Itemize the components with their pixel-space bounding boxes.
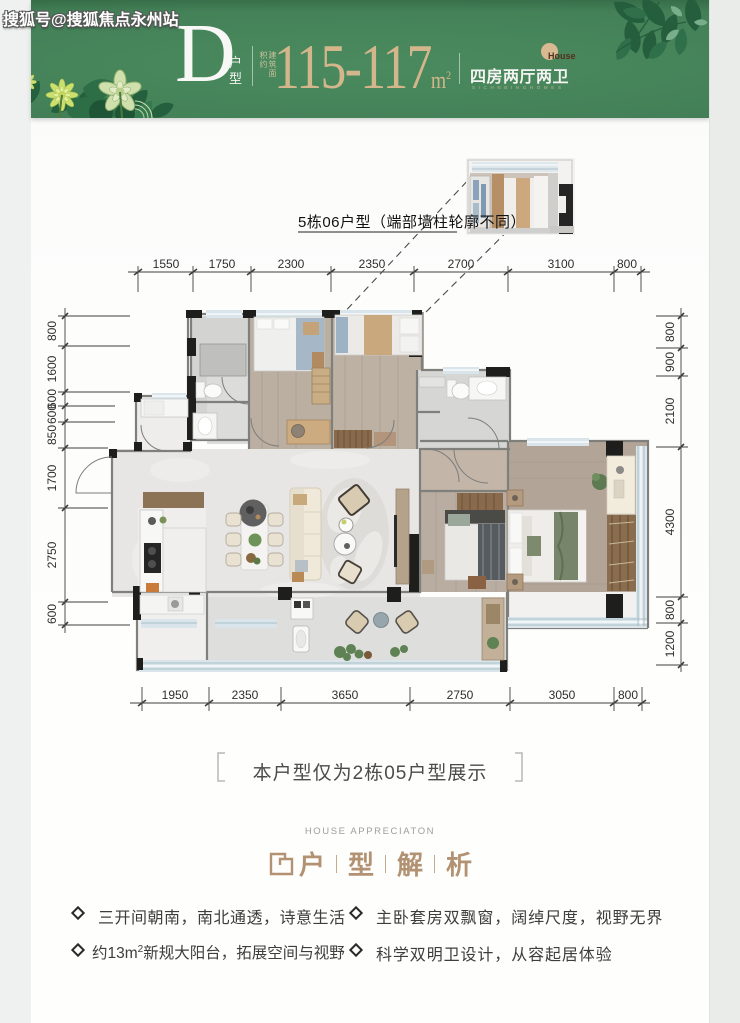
svg-text:2350: 2350 — [359, 257, 386, 271]
svg-text:2750: 2750 — [447, 688, 474, 702]
svg-text:1600: 1600 — [45, 355, 59, 382]
svg-text:1950: 1950 — [162, 688, 189, 702]
svg-text:3650: 3650 — [332, 688, 359, 702]
svg-text:800: 800 — [618, 688, 638, 702]
svg-text:2350: 2350 — [232, 688, 259, 702]
svg-text:1550: 1550 — [153, 257, 180, 271]
svg-text:4300: 4300 — [663, 508, 677, 535]
svg-text:600: 600 — [45, 604, 59, 624]
svg-text:1700: 1700 — [45, 464, 59, 491]
svg-text:2100: 2100 — [663, 397, 677, 424]
svg-text:800: 800 — [45, 321, 59, 341]
svg-text:600: 600 — [45, 404, 59, 424]
svg-text:5栋06户型（端部墙柱轮廓不同）: 5栋06户型（端部墙柱轮廓不同） — [298, 213, 526, 231]
svg-text:3100: 3100 — [548, 257, 575, 271]
svg-text:850: 850 — [45, 425, 59, 445]
svg-text:800: 800 — [663, 600, 677, 620]
svg-text:1200: 1200 — [663, 630, 677, 657]
svg-text:800: 800 — [663, 322, 677, 342]
svg-text:2750: 2750 — [45, 541, 59, 568]
svg-text:800: 800 — [617, 257, 637, 271]
svg-text:3050: 3050 — [549, 688, 576, 702]
svg-text:1750: 1750 — [209, 257, 236, 271]
svg-text:900: 900 — [663, 352, 677, 372]
svg-text:2300: 2300 — [278, 257, 305, 271]
svg-text:2700: 2700 — [448, 257, 475, 271]
